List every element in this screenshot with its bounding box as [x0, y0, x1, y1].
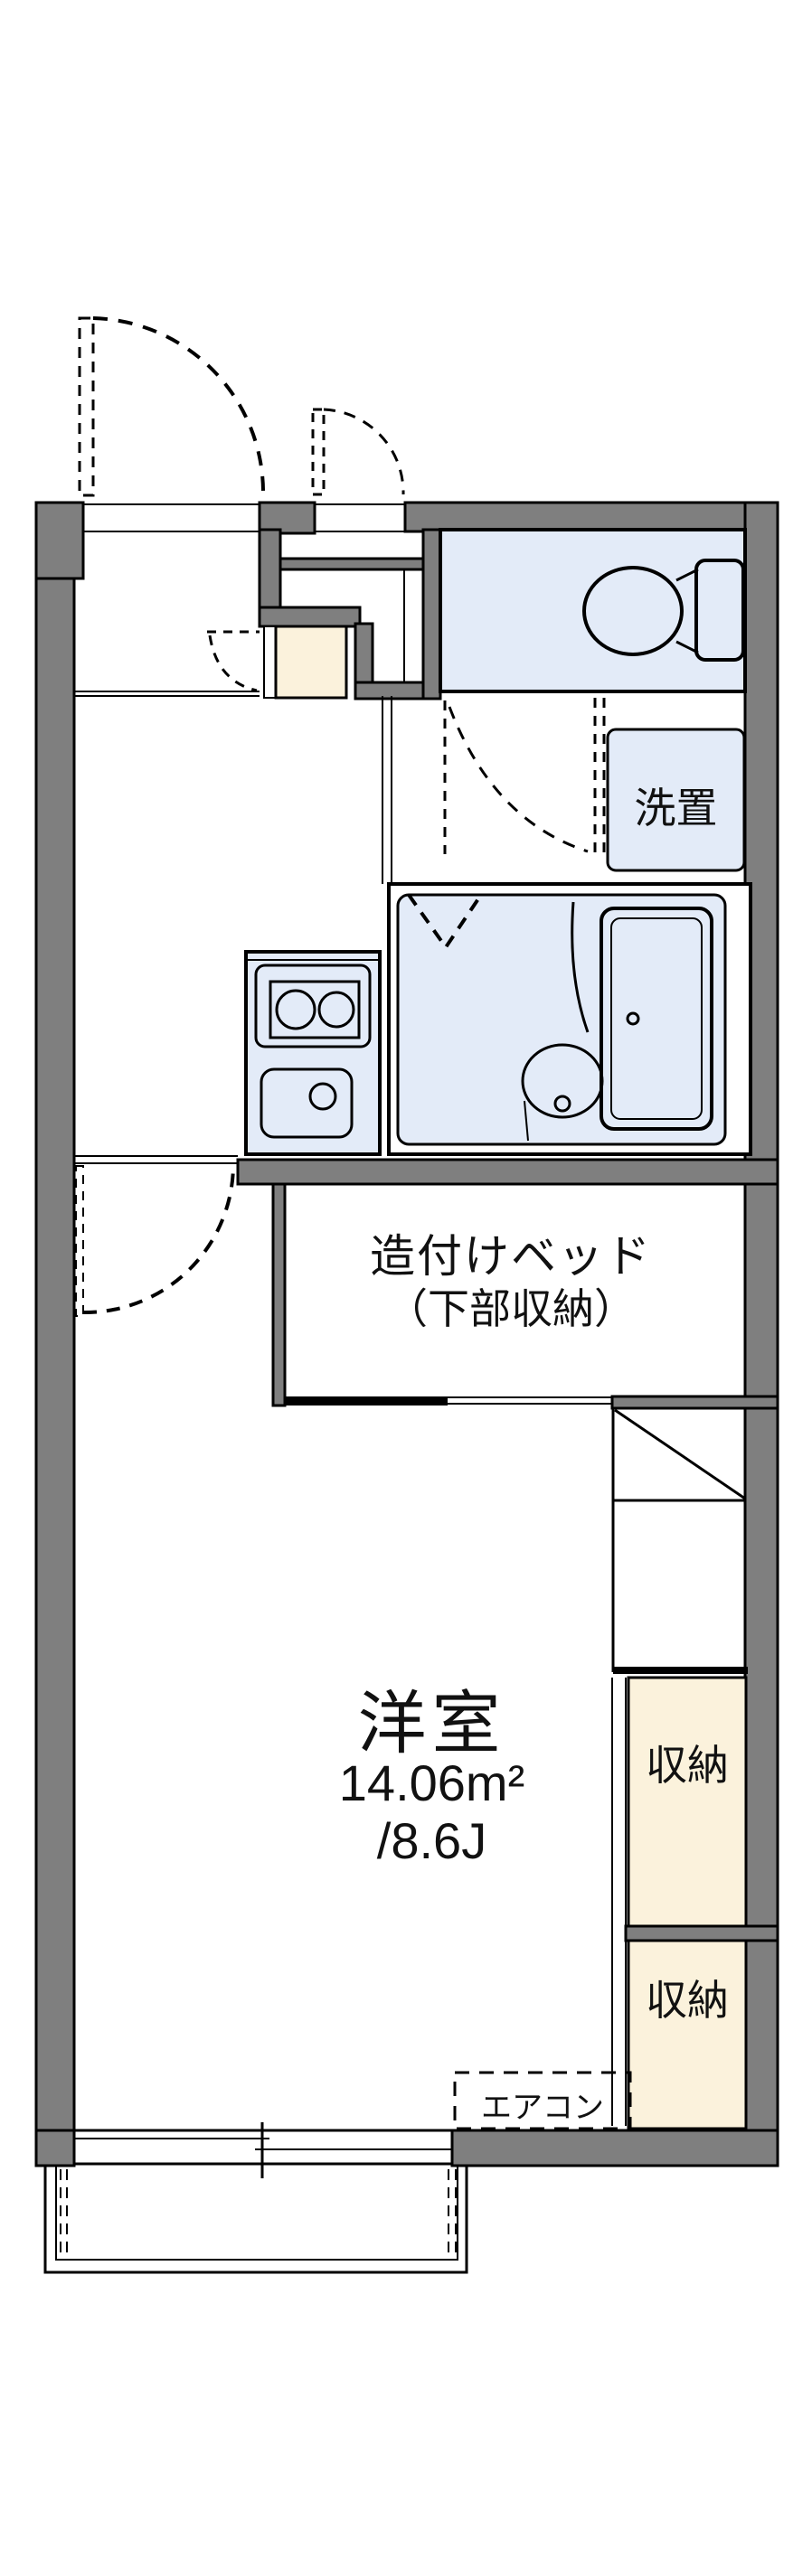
floor-plan: 洗置 造付けベッド （下部収納） 洋室 14.06m² /8.6J 収納 収納 … [0, 0, 812, 2576]
wall-bed-bottom-right [612, 1396, 778, 1408]
wall-left [36, 503, 74, 2166]
balcony-inner-line [56, 2166, 458, 2260]
bath-floor [398, 895, 725, 1144]
room-name-label: 洋室 [271, 1668, 592, 1767]
meter-box-door-leaf [313, 409, 324, 494]
wall-top-right [405, 503, 778, 531]
genkan-tile [276, 626, 346, 698]
room-area-m2-label: 14.06m² [271, 1753, 592, 1812]
laundry-label: 洗置 [608, 776, 744, 835]
wall-bottom-left [36, 2130, 74, 2166]
room-door-threshold [74, 1156, 238, 1163]
storage-lower-label: 収納 [632, 1969, 742, 2033]
room-area-jo-label: /8.6J [271, 1811, 592, 1870]
storage-upper-box [628, 1678, 746, 1926]
entrance-threshold [83, 504, 260, 531]
toilet-room [440, 530, 745, 691]
wall-bottom-right [452, 2130, 778, 2166]
kitchen [246, 952, 380, 1154]
wall-storage-separator [626, 1926, 778, 1941]
entrance-door-arc [93, 318, 263, 495]
genkan-side-strip [264, 626, 276, 698]
wall-bed-top [238, 1160, 778, 1184]
wall-toilet-left [423, 530, 440, 699]
sliding-window [74, 2122, 452, 2178]
room-door-arc [83, 1164, 233, 1312]
bed-label-line2: （下部収納） [262, 1276, 760, 1336]
meter-box-door-arc [324, 409, 403, 494]
aircon-label: エアコン [457, 2082, 628, 2127]
washroom-door-leaf [595, 698, 604, 857]
balcony-left-rail [61, 2169, 67, 2258]
storage-top-bar [613, 1667, 748, 1674]
storage-upper-label: 収納 [632, 1734, 742, 1798]
genkan-step-line [74, 691, 260, 696]
bed-opening-lines [448, 1397, 612, 1404]
wall-alcove-bottom [280, 559, 428, 569]
wall-vestibule-mid [260, 607, 360, 626]
balcony [45, 2166, 467, 2272]
bed-bottom-edge [285, 1396, 612, 1406]
meter-box-threshold [315, 504, 405, 531]
washroom-left-partition [382, 696, 392, 884]
balcony-right-rail [448, 2169, 456, 2258]
balcony-outline [45, 2166, 467, 2272]
toilet-door-arc [449, 707, 588, 851]
bathroom [389, 884, 751, 1154]
storage-door-rails [612, 1678, 626, 2126]
wall-top-left-corner [36, 503, 83, 578]
fridge-diagonal [615, 1410, 745, 1499]
bed-bottom-wall [285, 1396, 448, 1406]
room-door-leaf [76, 1166, 83, 1316]
genkan-door-arc [210, 635, 257, 691]
entrance-door-leaf [80, 318, 93, 495]
